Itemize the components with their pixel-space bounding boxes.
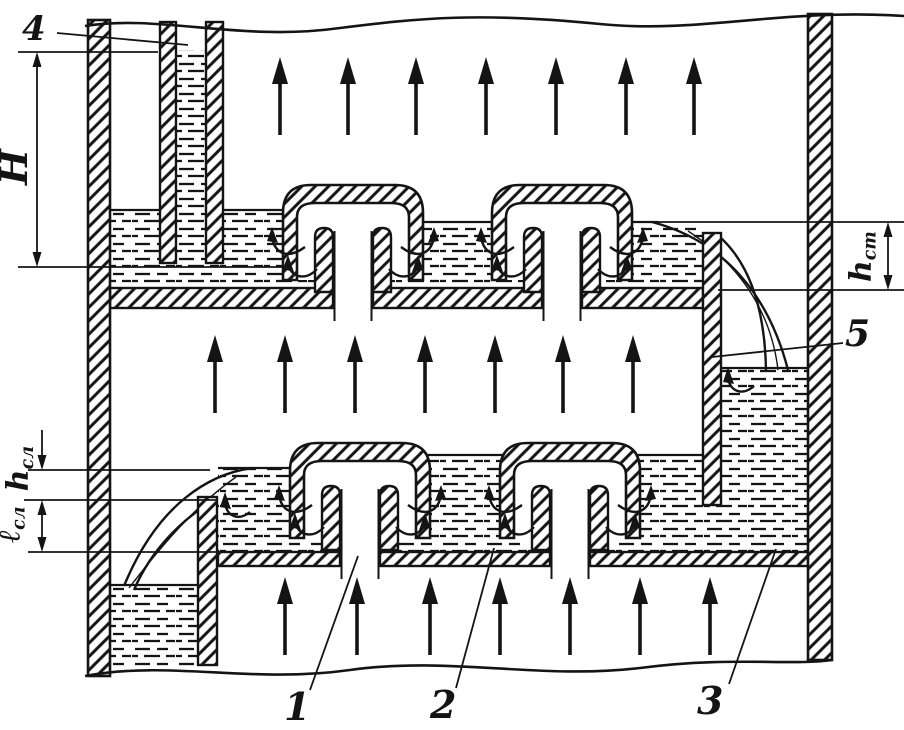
callout-2: 2 [430,686,456,724]
downcomer-pipe-wall [206,22,223,263]
column-wall-right [808,14,832,660]
callout-1: 1 [284,688,310,726]
dim-label-l-sl: ℓсл [0,507,29,543]
dim-label-h-sl: hсл [4,446,37,491]
dim-h-st-sub: ст [861,231,881,260]
diagram-canvas [0,0,904,730]
bubble-cap-tray-diagram: 4 H hст 5 hсл ℓсл 1 2 3 [0,0,904,730]
downcomer-pipe-wall [160,22,176,263]
downcomer-weir-left [198,497,217,665]
dim-h-st-base: h [844,260,879,282]
callout-4: 4 [22,12,46,46]
lower-tray-deck [380,552,550,566]
dim-label-h-st: hст [847,231,880,282]
lower-tray-deck [218,552,340,566]
downcomer-weir-right [703,233,721,505]
dim-l-sl-sub: сл [9,507,29,530]
upper-tray-deck [373,288,542,308]
bottom-left-pool [110,585,198,668]
dim-label-H: H [0,149,33,185]
callout-5: 5 [845,316,870,352]
callout-3: 3 [697,682,723,720]
lower-tray-deck [590,552,808,566]
dim-l-sl-base: ℓ [0,530,27,543]
downcomer-pipe-liquid [176,50,206,212]
column-wall-left [88,20,110,676]
dim-h-sl-base: h [1,469,36,491]
upper-tray-deck [110,288,333,308]
dim-h-sl-sub: сл [18,446,38,469]
upper-tray-liquid-left [110,210,290,288]
